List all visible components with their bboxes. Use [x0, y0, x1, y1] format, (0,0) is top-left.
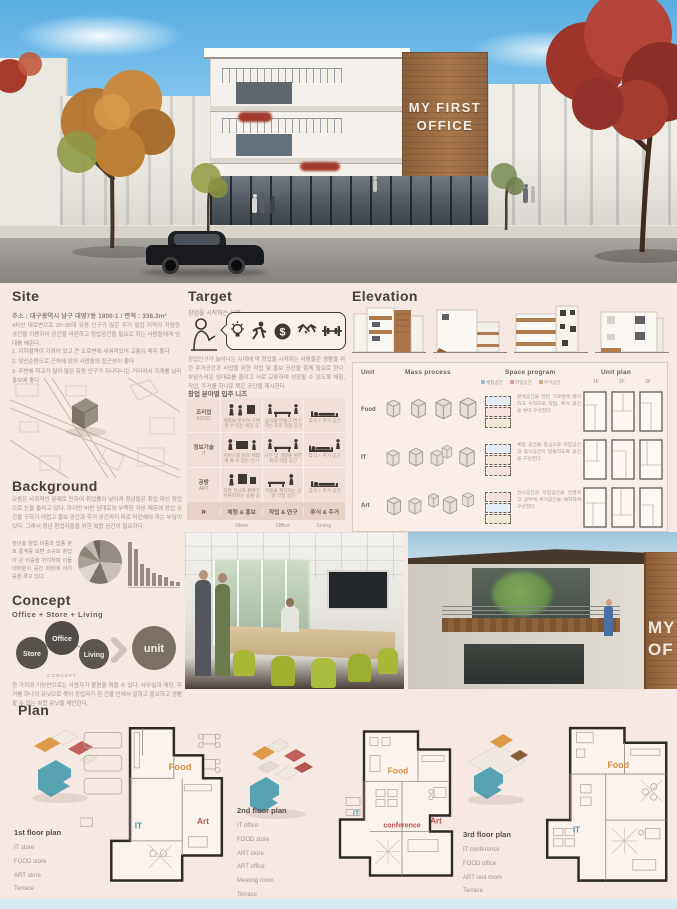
needs-row-it: 정보기술IT 서비스를 바로 체험해 볼 수 있는 전시 공간 사무 및 개발을… — [187, 433, 345, 468]
wood-sign-panel: MY OF — [644, 552, 677, 689]
axon-floor3 — [462, 728, 534, 808]
background-body2: 청년층 창업 비중과 업종 분포 통계를 보면 소규모 창업이 큰 비중을 차지… — [12, 540, 72, 582]
plan-col-3f: 3F — [645, 379, 651, 385]
work-pictogram — [266, 402, 300, 417]
cell-caption: 서비스를 바로 체험해 볼 수 있는 전시 공간 — [223, 453, 261, 464]
chair-green — [271, 656, 295, 686]
space-program-food — [485, 395, 511, 428]
row-code: IT — [201, 451, 205, 457]
bar — [152, 573, 156, 586]
summary-cell: 작업 & 연구 — [262, 507, 304, 516]
person-head — [199, 570, 208, 580]
unit-plan-mini — [583, 439, 665, 481]
needs-row-food: 조리업FOOD 제품을 맛보며 구매할 수 있는 매장 공간 음식을 만들고 연… — [187, 398, 345, 433]
bar — [176, 582, 180, 586]
tree-mid-green — [491, 163, 524, 230]
row-code: ART — [199, 486, 209, 492]
bar — [164, 577, 168, 586]
plan2-label-food: Food — [388, 766, 409, 776]
summary-cell: 휴식 & 주거 — [303, 507, 345, 516]
cell-caption: 사무 및 개발을 위한 회의 작업 공간 — [264, 453, 302, 464]
cell-caption: 작품 전시와 판매가 이루어지는 쇼룸 공간 — [223, 488, 261, 499]
plan1-label-it: IT — [135, 820, 142, 830]
presentation-board: MY FIRST OFFICE OFFICE & SHOP — [0, 0, 677, 909]
mass-process-it — [381, 441, 477, 471]
person-head — [606, 599, 612, 606]
coin-glyph: $ — [279, 326, 285, 338]
barbell-icon — [322, 323, 342, 339]
coin-icon: $ — [274, 323, 291, 340]
plan2-label-art: Art — [430, 817, 442, 826]
elevation-back — [514, 304, 588, 356]
chair-green — [378, 648, 398, 674]
floor2-item: Meeting room — [237, 875, 274, 889]
elevation-side-left — [433, 304, 507, 356]
cell-caption: 휴식 + 주거 공간 — [306, 453, 344, 464]
handshake-icon — [297, 323, 317, 339]
plan1-label-art: Art — [197, 816, 209, 826]
work-pictogram — [266, 437, 300, 452]
floor1-items: IT store FOOD store ART store Terrace — [14, 842, 46, 897]
balcony-rail — [442, 606, 620, 618]
exterior-render: MY OF — [408, 532, 677, 689]
concept-diagram: Store Office Living CONCEPT unit — [10, 618, 182, 680]
footer-living: Living — [304, 523, 345, 529]
cell-caption: 음식을 만들고 연구하는 조리 작업 공간 — [264, 418, 302, 429]
mass-process-art — [381, 489, 477, 519]
hero-render: MY FIRST OFFICE OFFICE & SHOP — [0, 0, 677, 283]
person-head — [286, 598, 294, 607]
tree-small-green — [191, 163, 228, 238]
bottom-strip — [0, 899, 677, 909]
floor2-item: FOOD store — [237, 834, 274, 848]
bar — [170, 581, 174, 586]
concept-caption: CONCEPT — [47, 673, 76, 678]
person-standing — [215, 584, 230, 676]
bar — [134, 549, 138, 586]
floor1-item: FOOD store — [14, 856, 46, 870]
needs-footer: Store Office Living — [187, 523, 345, 529]
site-title: Site — [12, 288, 39, 304]
living-pictogram — [308, 472, 342, 487]
car — [146, 231, 264, 277]
floor2-item: ART office — [237, 861, 274, 875]
person-head — [218, 573, 227, 583]
bar-axis — [128, 587, 180, 588]
concept-result: unit — [144, 643, 164, 655]
unit-table: Unit Mass process Space program Unit pla… — [352, 362, 668, 532]
plan-col-1f: 1F — [593, 379, 599, 385]
floor1-item: Terrace — [14, 883, 46, 897]
plan-title: Plan — [18, 702, 49, 718]
shrub-topleft-red — [0, 52, 42, 93]
site-note-1: 1. 지하철역이 가까이 있고 큰 도로변에 세워져있어 교통이 매우 좋다 — [12, 348, 182, 358]
site-marker — [66, 398, 106, 437]
row-category: 정보기술 — [193, 443, 214, 451]
unit-desc-art: 전시공간과 작업공간을 연결하고 상부에 주거공간을 배치하여 구성한다. — [517, 491, 581, 512]
legend-item: 주거공간 — [539, 380, 561, 386]
background-title: Background — [12, 478, 98, 494]
person — [260, 197, 265, 213]
space-program-it — [485, 443, 511, 476]
plan2-label-conference: conference — [383, 823, 420, 830]
col-header-plan: Unit plan — [601, 369, 631, 376]
site-note-2: 2. 앞산순환도로 근처에 있어 사람들의 접근성이 좋다 — [12, 358, 182, 368]
elevation-side-right — [595, 304, 669, 356]
legend-item: 체험공간 — [481, 380, 503, 386]
col-header-mass: Mass process — [405, 369, 451, 376]
floor3-item: FOOD office — [463, 858, 502, 872]
mass-process-food — [381, 393, 477, 423]
unit-row-art: Art — [361, 503, 370, 509]
space-legend: 체험공간 작업공간 주거공간 — [481, 380, 561, 386]
floorplan-1: Food IT Art — [80, 724, 226, 891]
elevation-drawings — [352, 304, 669, 356]
concept-title: Concept — [12, 592, 71, 608]
person-standing — [195, 580, 211, 676]
floor3-item: ART rest room — [463, 872, 502, 886]
car-window — [174, 234, 220, 245]
unit-row-food: Food — [361, 407, 376, 413]
double-arrow-icon: » — [187, 506, 220, 516]
car-shadow — [142, 269, 268, 276]
site-map — [10, 378, 180, 478]
person — [373, 180, 377, 192]
cell-caption: 작품을 제작하는 공방 작업 공간 — [264, 488, 302, 499]
unit-plan-mini — [583, 487, 665, 529]
runner-icon — [250, 321, 268, 341]
floor2-item: ART store — [237, 848, 274, 862]
floor2-item: IT office — [237, 820, 274, 834]
floor1-name: 1st floor plan — [14, 828, 61, 837]
photo-sign-line1: MY — [648, 618, 676, 638]
elevation-title: Elevation — [352, 288, 418, 304]
row-category: 공방 — [199, 478, 209, 486]
cell-caption: 제품을 맛보며 구매할 수 있는 매장 공간 — [223, 418, 261, 429]
balcony-wood-band — [442, 618, 620, 632]
floor3-name: 3rd floor plan — [463, 830, 511, 839]
person-seated — [281, 606, 299, 632]
unit-plan-mini — [583, 391, 665, 433]
floorplan-3: Food IT — [528, 724, 675, 891]
floor1-item: ART store — [14, 870, 46, 884]
legend-item: 작업공간 — [510, 380, 532, 386]
plan3-label-food: Food — [607, 760, 629, 770]
row-category: 조리업 — [196, 408, 211, 416]
cell-caption: 휴식 + 주거 공간 — [306, 488, 344, 499]
concept-circle-living: Living — [84, 652, 105, 659]
floor1-item: IT store — [14, 842, 46, 856]
bar — [146, 568, 150, 586]
chair-green — [348, 654, 371, 682]
floor2-name: 2nd floor plan — [237, 806, 287, 815]
plan-col-2f: 2F — [619, 379, 625, 385]
col-header-unit: Unit — [361, 369, 375, 376]
chevron-right-icon — [114, 640, 124, 660]
site-body: 4차선 대로변으로 20~30대 유동 인구가 많은 주거 밀집 지역의 저렴한… — [12, 322, 180, 349]
unit-row-it: IT — [361, 455, 366, 461]
plan1-label-food: Food — [169, 762, 192, 772]
needs-row-art: 공방ART 작품 전시와 판매가 이루어지는 쇼룸 공간 작품을 제작하는 공방… — [187, 468, 345, 502]
cell-caption: 휴식 + 주거 공간 — [306, 418, 344, 429]
elevation-front — [352, 304, 426, 356]
store-pictogram — [225, 402, 259, 417]
tv-screen — [327, 570, 389, 610]
site-address: 주소 : 대구광역시 남구 대명7동 1800-1 / 면적 : 336.3m² — [12, 311, 182, 320]
plan3-label-it: IT — [573, 826, 580, 835]
floor3-item: IT conference — [463, 844, 502, 858]
concept-circle-store: Store — [23, 651, 41, 658]
background-bar-chart — [128, 540, 182, 586]
needs-table: 조리업FOOD 제품을 맛보며 구매할 수 있는 매장 공간 음식을 만들고 연… — [187, 398, 345, 520]
living-pictogram — [308, 437, 342, 452]
person — [252, 198, 257, 213]
unit-desc-it: 체험 공간을 중심으로 작업공간과 휴식공간이 맞물리도록 공간을 구성한다. — [517, 443, 581, 464]
space-program-art — [485, 491, 511, 524]
footer-store: Store — [221, 523, 262, 529]
lightbulb-icon — [230, 321, 245, 341]
floor2-items: IT office FOOD store ART store ART offic… — [237, 820, 274, 903]
persona-icon — [188, 316, 220, 352]
person — [531, 190, 535, 203]
tree-right-red — [546, 0, 677, 263]
store-pictogram — [225, 472, 259, 487]
concept-circle-office: Office — [52, 636, 72, 643]
row-code: FOOD — [196, 416, 210, 422]
interior-render — [185, 532, 404, 689]
chair-green — [233, 650, 255, 676]
floorplan-2: Food conference IT Art — [318, 724, 458, 891]
person — [523, 188, 528, 203]
photo-sign-line2: OF — [648, 640, 674, 660]
bar — [158, 575, 162, 586]
needs-title: 창업 분야별 입주 니즈 — [188, 388, 247, 398]
floor3-items: IT conference FOOD office ART rest room … — [463, 844, 502, 899]
person-balcony — [604, 606, 613, 636]
plan2-label-it: IT — [353, 811, 360, 818]
unit-desc-food: 판매공간을 전면 가로변에 배치하고 수직으로 작업, 주거 공간을 쌓아 구성… — [517, 395, 581, 416]
lower-glass — [464, 644, 584, 684]
bar — [128, 542, 132, 586]
floor3-item: Terrace — [463, 885, 502, 899]
store-pictogram — [225, 437, 259, 452]
chair-green — [311, 658, 336, 688]
speech-bubble: $ — [226, 312, 346, 350]
col-header-space: Space program — [505, 369, 555, 376]
target-body: 창업인구가 늘어나는 시대에 막 창업을 시작하는 사람들은 생활을 위한 주거… — [188, 356, 345, 392]
summary-cell: 체험 & 홍보 — [220, 507, 262, 516]
target-title: Target — [188, 288, 232, 304]
background-pie-chart — [78, 540, 122, 584]
bar — [140, 564, 144, 586]
trees-overlay — [0, 0, 677, 283]
person — [270, 200, 275, 214]
work-pictogram — [266, 472, 300, 487]
tree-left-orange — [57, 70, 175, 258]
needs-summary-row: » 체험 & 홍보 작업 & 연구 휴식 & 주거 — [187, 502, 345, 520]
footer-office: Office — [262, 523, 303, 529]
background-body1: 요즘은 사회적인 문제로 인하여 취업률이 낮아져 청년들은 취업 대신 창업으… — [12, 496, 182, 532]
living-pictogram — [308, 402, 342, 417]
